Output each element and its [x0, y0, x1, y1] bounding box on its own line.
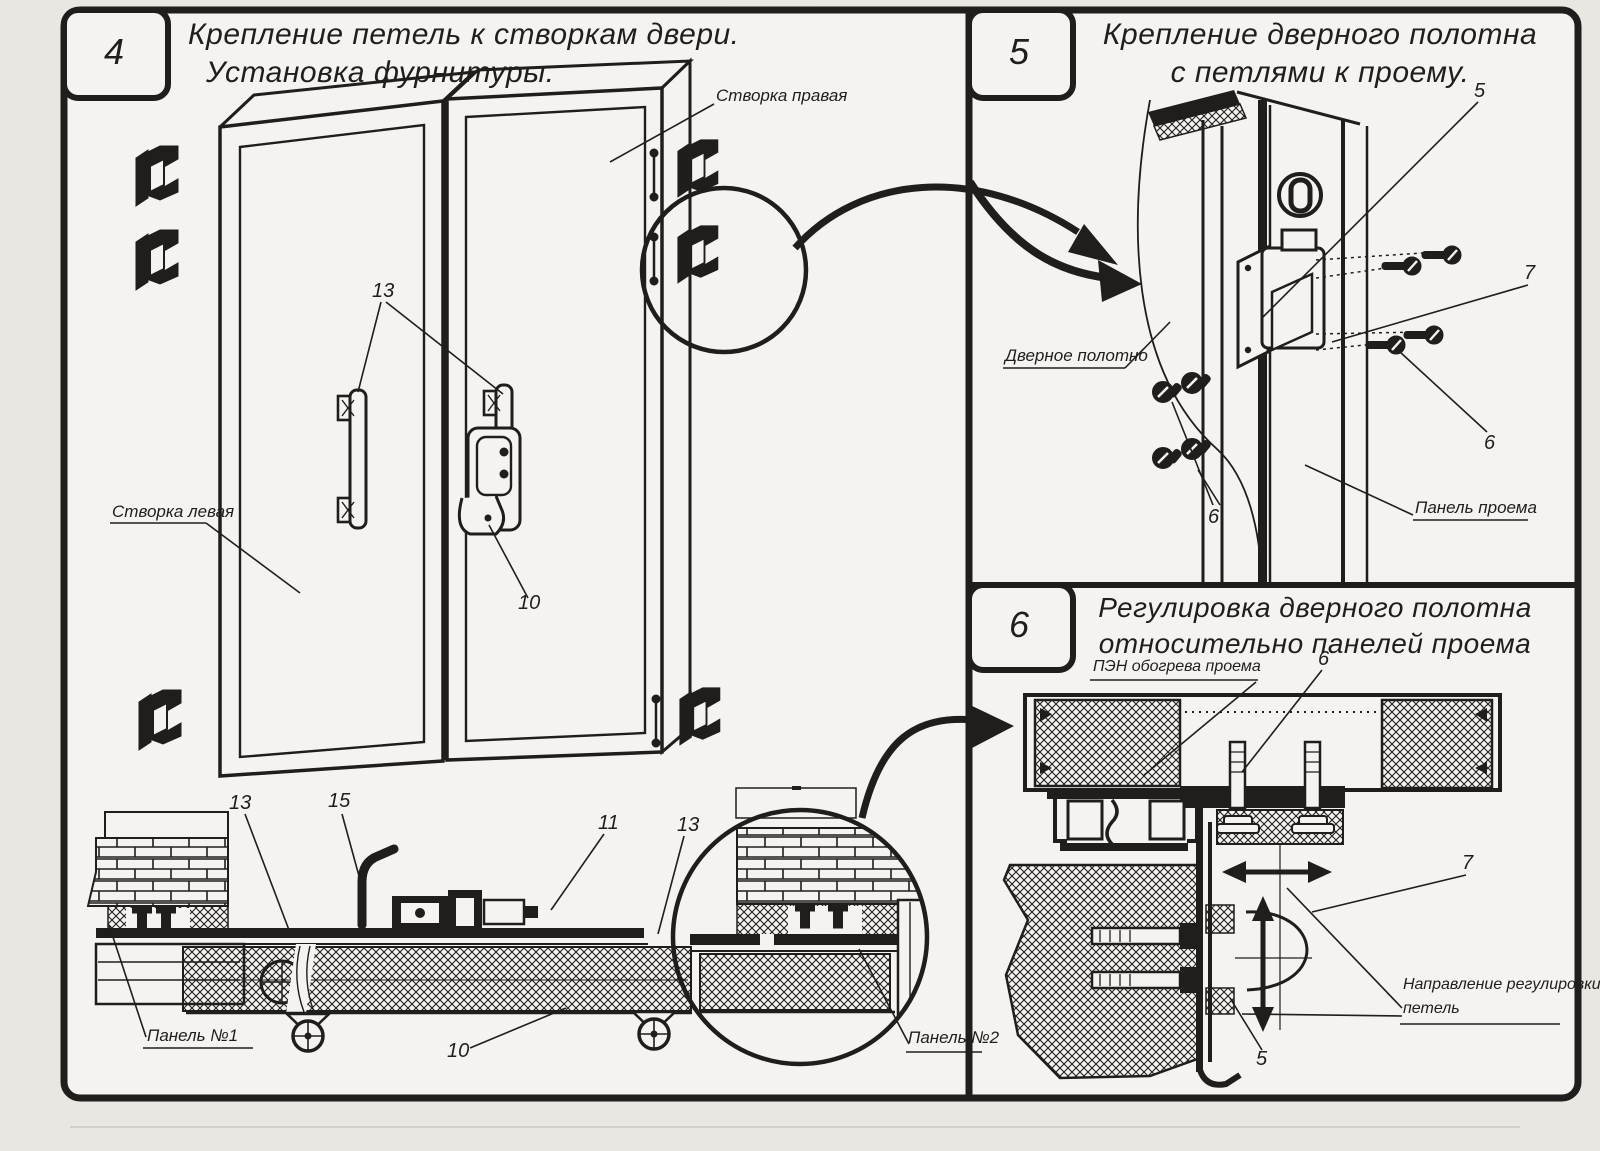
- callout-6: 6: [1318, 648, 1329, 671]
- panel5-title-line1: Крепление дверного полотна: [1080, 18, 1560, 52]
- technical-drawing: [0, 0, 1600, 1151]
- callout-7b: 7: [1462, 852, 1473, 875]
- label-left-leaf: Створка левая: [112, 502, 234, 522]
- label-opening-panel: Панель проема: [1415, 498, 1537, 518]
- callout-5: 5: [1474, 80, 1485, 103]
- callout-10b: 10: [447, 1040, 469, 1063]
- label-pen-heater: ПЭН обогрева проема: [1093, 658, 1261, 676]
- callout-13c: 13: [677, 814, 699, 837]
- panel5-title-line2: с петлями к проему.: [1080, 56, 1560, 90]
- callout-10a: 10: [518, 592, 540, 615]
- callout-15: 15: [328, 790, 350, 813]
- panel4-title-line2: Установка фурнитуры.: [206, 56, 555, 90]
- label-panel1: Панель №1: [147, 1026, 238, 1046]
- callout-6a: 6: [1484, 432, 1495, 455]
- callout-5b: 5: [1256, 1048, 1267, 1071]
- callout-7: 7: [1524, 262, 1535, 285]
- label-panel2: Панель №2: [908, 1028, 999, 1048]
- callout-6b: 6: [1208, 506, 1219, 529]
- callout-13b: 13: [229, 792, 251, 815]
- panel6-title-line2: относительно панелей проема: [1080, 628, 1550, 660]
- panel4-title-line1: Крепление петель к створкам двери.: [188, 18, 740, 52]
- label-adjust-direction-line1: Направление регулировки: [1403, 976, 1600, 994]
- label-door-leaf: Дверное полотно: [1005, 346, 1148, 366]
- panel6-number: 6: [969, 585, 1069, 665]
- label-adjust-direction-line2: петель: [1403, 1000, 1460, 1018]
- panel5-number: 5: [969, 10, 1069, 94]
- callout-13a: 13: [372, 280, 394, 303]
- callout-11: 11: [598, 812, 619, 835]
- panel4-number: 4: [64, 10, 164, 94]
- panel6-title-line1: Регулировка дверного полотна: [1080, 592, 1550, 624]
- scanned-drawing-page: 4 5 6 Крепление петель к створкам двери.…: [0, 0, 1600, 1151]
- label-right-leaf: Створка правая: [716, 86, 847, 106]
